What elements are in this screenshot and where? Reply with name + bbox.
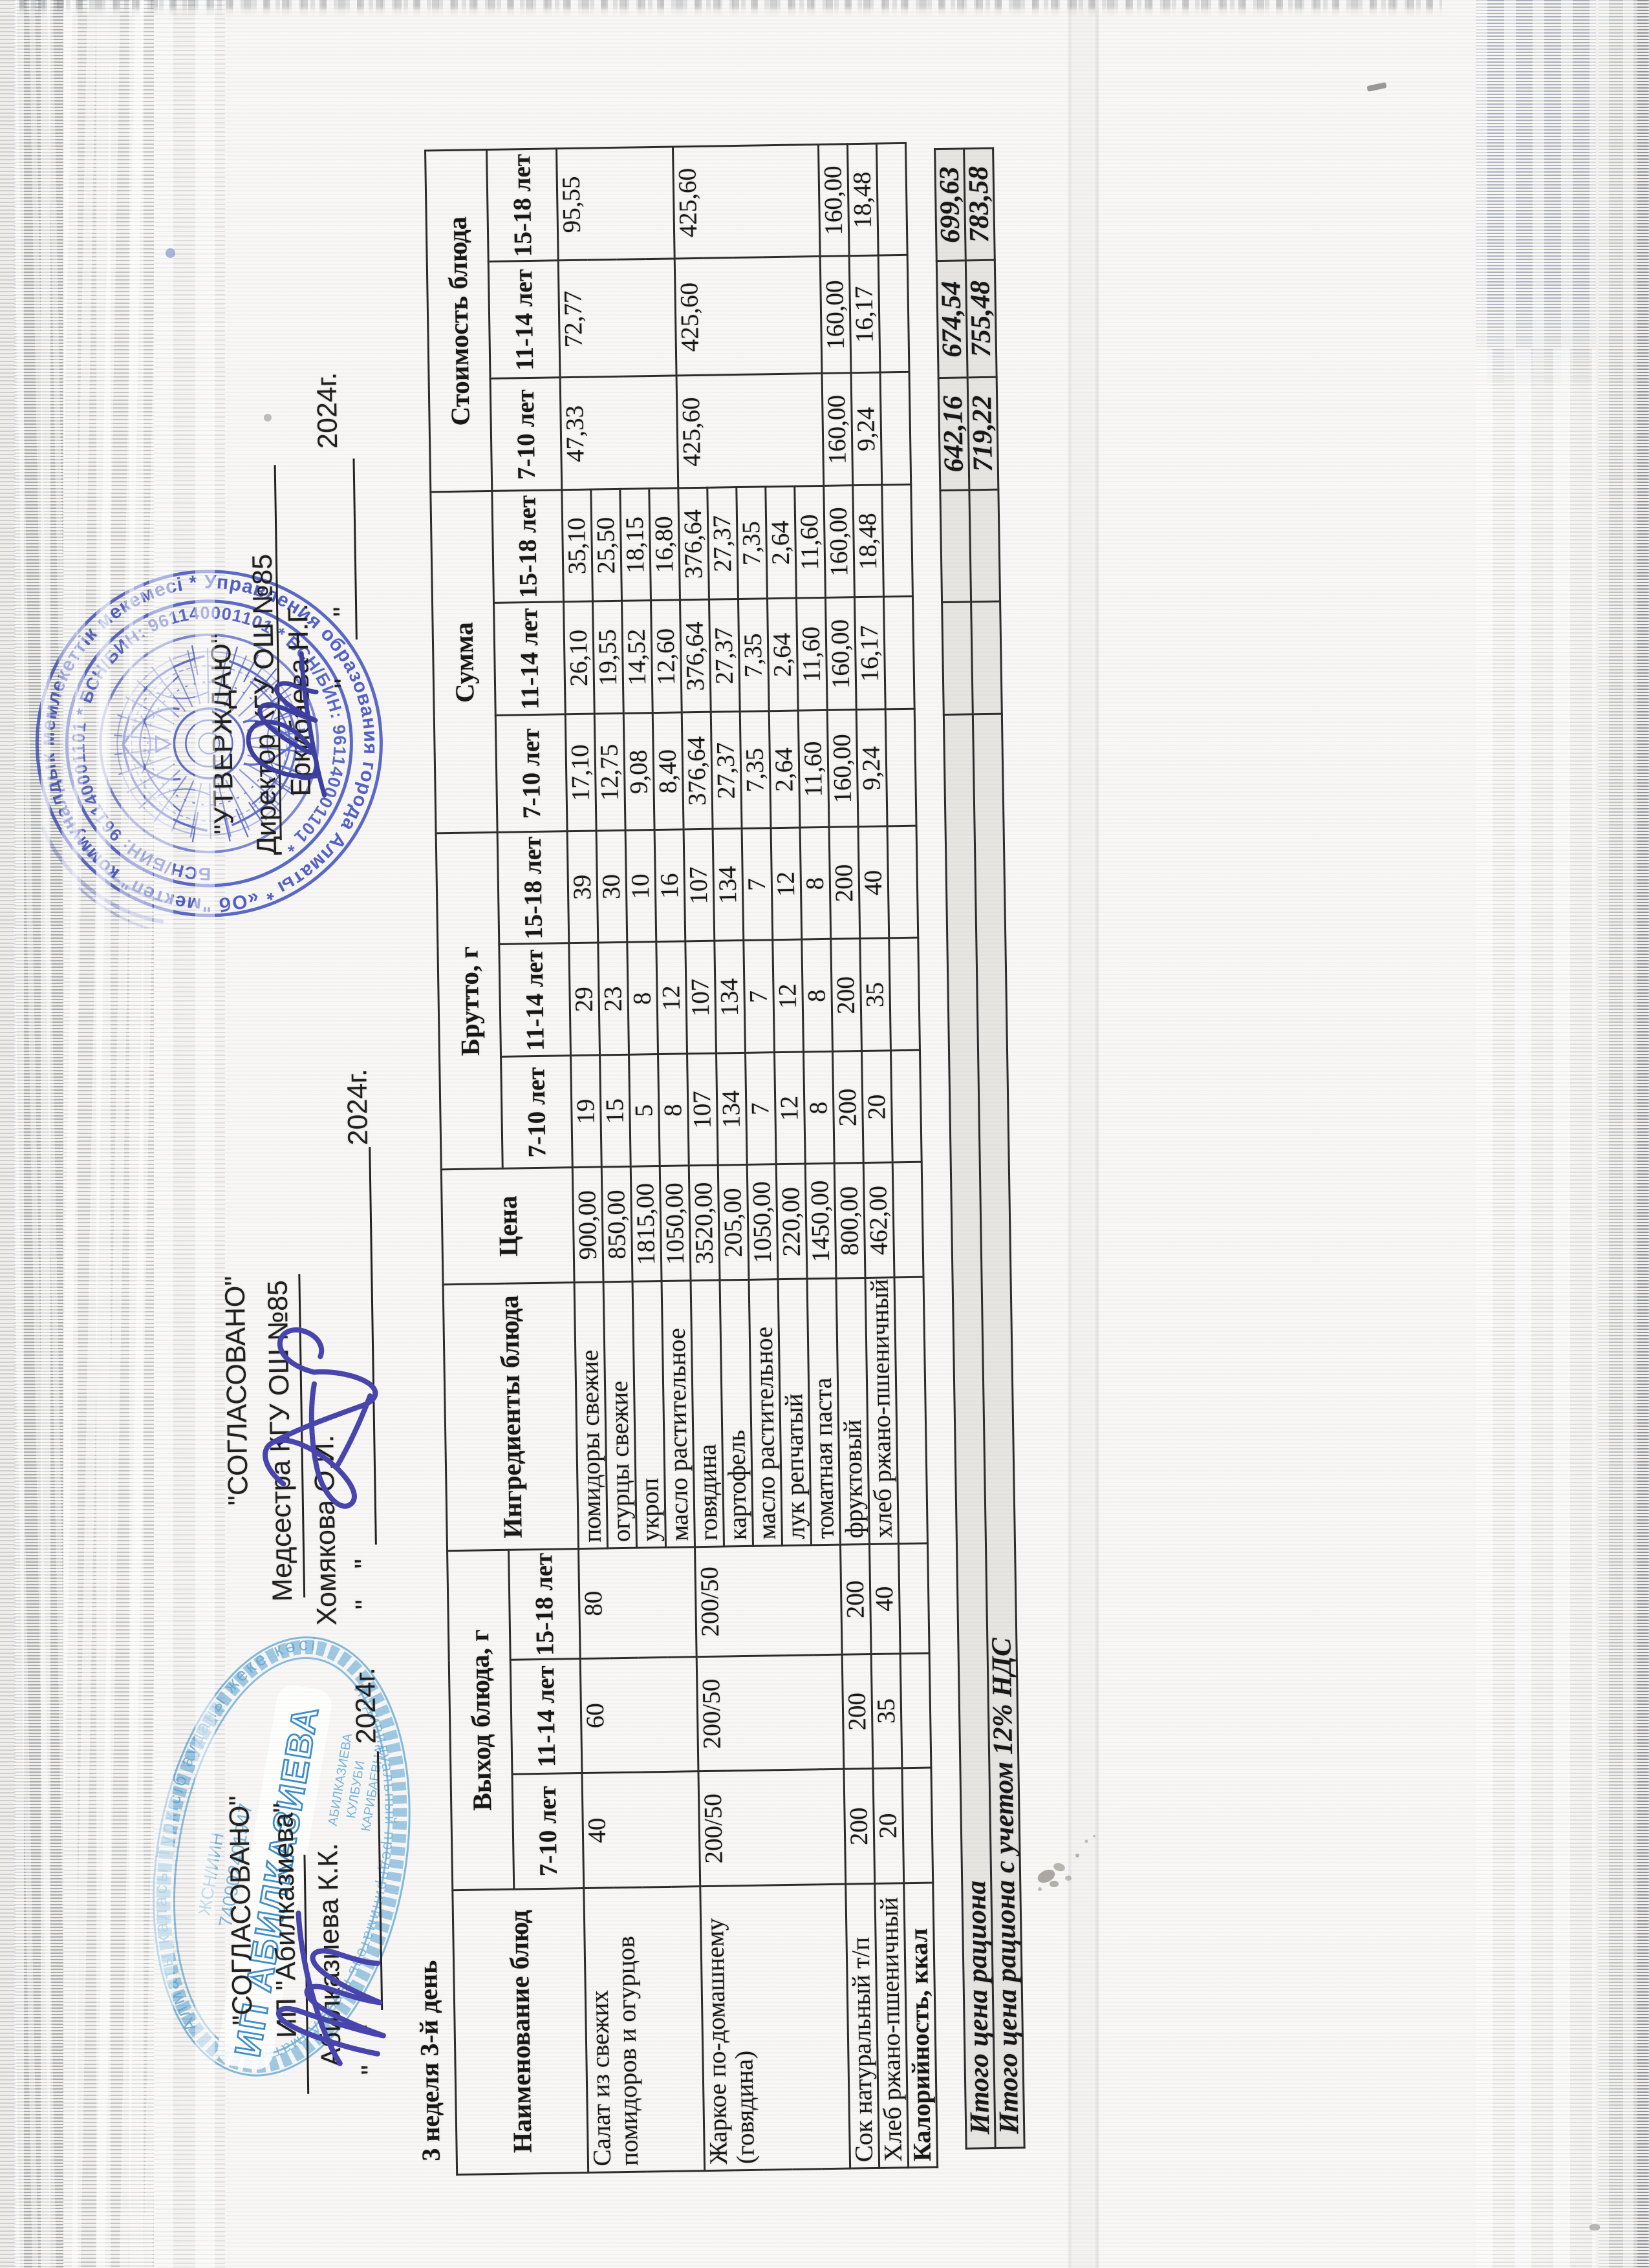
svg-text:КУЛБУБИ: КУЛБУБИ xyxy=(344,1760,368,1819)
svg-text:КАРИБАЕВНА: КАРИБАЕВНА xyxy=(359,1745,387,1833)
svg-text:АБИЛКАЗИЕВА: АБИЛКАЗИЕВА xyxy=(326,1732,356,1827)
svg-text:ЖСН/ИИН: ЖСН/ИИН xyxy=(195,1831,228,1917)
